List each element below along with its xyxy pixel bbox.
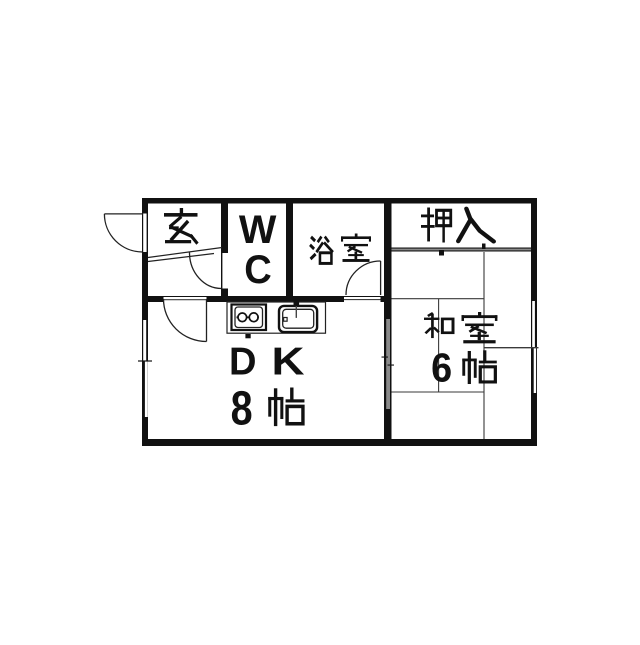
svg-text:W: W (239, 208, 277, 252)
svg-text:8: 8 (231, 382, 253, 435)
svg-text:D: D (229, 341, 257, 384)
svg-text:C: C (244, 248, 272, 292)
svg-text:6: 6 (431, 345, 452, 391)
svg-text:K: K (272, 341, 305, 384)
